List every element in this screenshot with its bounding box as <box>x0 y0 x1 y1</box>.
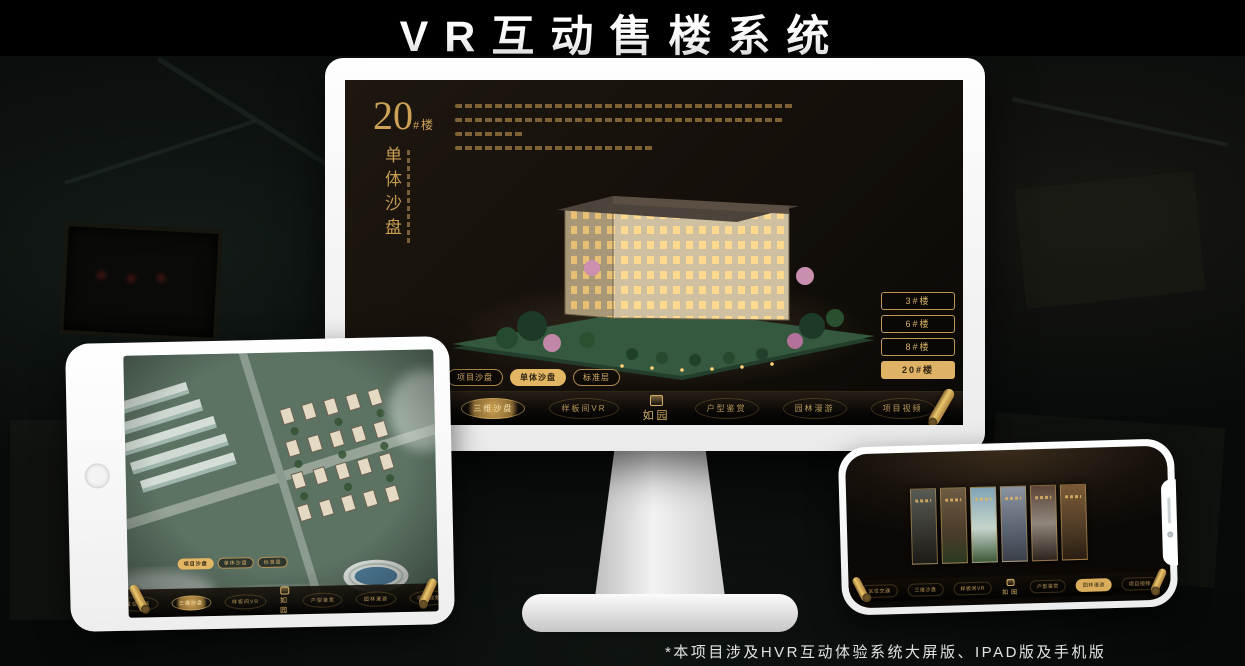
nav-item-garden-roam[interactable]: 园林漫游 <box>783 398 847 419</box>
block-caption-vertical: 单体沙盘 <box>379 146 404 242</box>
nav-item-showroom-vr[interactable]: 样板间VR <box>953 581 992 595</box>
seal-icon <box>650 395 663 406</box>
building-3d-model[interactable] <box>437 148 877 393</box>
nav-item-3d-sandtable[interactable]: 三维沙盘 <box>907 582 943 596</box>
tablet-device: 项目沙盘 单体沙盘 标准层 区位交通 三维沙盘 样板间VR 如园 户型鉴赏 园林… <box>65 336 455 632</box>
floor-button-3[interactable]: 3#楼 <box>881 292 955 310</box>
tablet-view-tabs: 项目沙盘 单体沙盘 标准层 <box>178 556 288 569</box>
description-text-line <box>455 104 795 108</box>
nav-item-3d-sandtable[interactable]: 三维沙盘 <box>461 398 525 419</box>
tab-project-sandtable[interactable]: 项目沙盘 <box>178 558 214 570</box>
nav-item-showroom-vr[interactable]: 样板间VR <box>549 398 618 419</box>
vertical-caption-ornament <box>407 150 410 246</box>
floor-button-8[interactable]: 8#楼 <box>881 338 955 356</box>
view-tabs: 项目沙盘 单体沙盘 标准层 <box>447 369 620 386</box>
ruyuan-logo[interactable]: 如园 <box>1002 578 1020 595</box>
seal-icon <box>1007 578 1015 585</box>
logo-text: 如园 <box>1002 586 1020 595</box>
block-title: 20#楼 <box>373 96 435 136</box>
background-building-block <box>1014 171 1206 309</box>
monitor-stand-base <box>522 594 798 632</box>
speaker-slot <box>1167 497 1171 523</box>
nav-item-project-video[interactable]: 项目视频 <box>871 398 935 419</box>
scene-panel[interactable] <box>940 487 968 564</box>
scene-panel[interactable] <box>970 486 998 563</box>
nav-item-unit-plans[interactable]: 户型鉴赏 <box>303 592 343 608</box>
footnote-text: *本项目涉及HVR互动体验系统大屏版、IPAD版及手机版 <box>665 641 1106 662</box>
tablet-screen-ui: 项目沙盘 单体沙盘 标准层 区位交通 三维沙盘 样板间VR 如园 户型鉴赏 园林… <box>123 349 438 617</box>
tab-single-sandtable[interactable]: 单体沙盘 <box>218 557 254 569</box>
poster: VR互动售楼系统 20#楼 单体沙盘 <box>0 0 1245 666</box>
floor-button-20[interactable]: 20#楼 <box>881 361 955 379</box>
ruyuan-logo[interactable]: 如园 <box>643 395 671 423</box>
block-number-suffix: #楼 <box>413 118 435 132</box>
monitor-stand-neck <box>595 449 725 597</box>
logo-text: 如园 <box>643 407 671 423</box>
background-plaque <box>59 222 223 342</box>
home-button[interactable] <box>85 463 111 489</box>
scene-panel[interactable] <box>1030 485 1058 562</box>
phone-notch <box>1161 479 1178 565</box>
block-number: 20 <box>373 93 413 138</box>
front-camera <box>1167 531 1173 537</box>
logo-text: 如园 <box>280 595 290 615</box>
tablet-bottom-navbar: 区位交通 三维沙盘 样板间VR 如园 户型鉴赏 园林漫游 项目视频 <box>128 583 439 617</box>
nav-item-unit-plans[interactable]: 户型鉴赏 <box>1030 579 1066 593</box>
seal-icon <box>280 586 289 594</box>
phone-screen-ui: 区位交通 三维沙盘 样板间VR 如园 户型鉴赏 园林漫游 项目视频 <box>845 446 1171 609</box>
nav-item-showroom-vr[interactable]: 样板间VR <box>224 593 267 609</box>
nav-item-3d-sandtable[interactable]: 三维沙盘 <box>171 595 211 611</box>
tab-project-sandtable[interactable]: 项目沙盘 <box>447 369 503 386</box>
phone-bottom-navbar: 区位交通 三维沙盘 样板间VR 如园 户型鉴赏 园林漫游 项目视频 <box>848 571 1170 602</box>
scene-panel[interactable] <box>1000 485 1028 562</box>
floor-button-panel: 3#楼 6#楼 8#楼 20#楼 <box>881 292 955 379</box>
scene-panel[interactable] <box>1060 484 1088 561</box>
tab-standard-floor[interactable]: 标准层 <box>573 369 620 386</box>
nav-item-garden-roam[interactable]: 园林漫游 <box>356 591 396 607</box>
tab-standard-floor[interactable]: 标准层 <box>258 556 288 568</box>
page-title: VR互动售楼系统 <box>0 2 1245 64</box>
floor-button-6[interactable]: 6#楼 <box>881 315 955 333</box>
tab-single-sandtable[interactable]: 单体沙盘 <box>510 369 566 386</box>
ruyuan-logo[interactable]: 如园 <box>280 586 291 615</box>
description-text-line <box>455 118 783 122</box>
aerial-masterplan-view[interactable] <box>123 349 438 617</box>
nav-item-unit-plans[interactable]: 户型鉴赏 <box>695 398 759 419</box>
phone-device: 区位交通 三维沙盘 样板间VR 如园 户型鉴赏 园林漫游 项目视频 <box>838 438 1179 615</box>
scene-panel[interactable] <box>910 488 938 565</box>
nav-item-garden-roam[interactable]: 园林漫游 <box>1076 578 1112 592</box>
description-text-line <box>455 132 523 136</box>
